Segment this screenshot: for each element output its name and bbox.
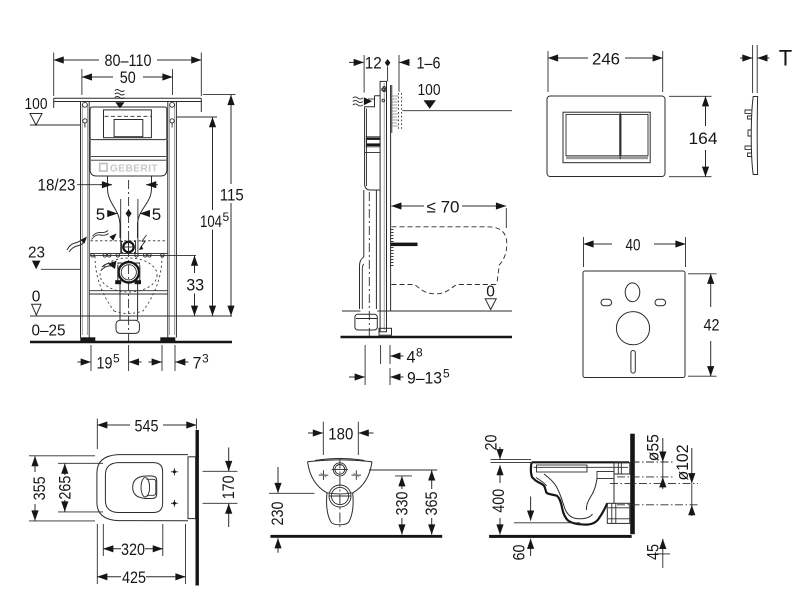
svg-text:GEBERIT: GEBERIT [110, 163, 158, 175]
svg-text:5: 5 [152, 205, 161, 224]
svg-text:5: 5 [443, 367, 450, 381]
svg-text:180: 180 [328, 425, 353, 444]
svg-text:115: 115 [220, 185, 244, 204]
svg-text:5: 5 [96, 205, 105, 224]
svg-text:246: 246 [592, 50, 620, 69]
svg-text:104: 104 [200, 212, 222, 231]
svg-text:230: 230 [268, 502, 287, 526]
svg-text:100: 100 [418, 82, 441, 99]
svg-text:5: 5 [113, 352, 120, 366]
svg-text:33: 33 [186, 276, 204, 295]
svg-text:330: 330 [392, 492, 411, 516]
svg-text:425: 425 [122, 568, 146, 587]
svg-text:320: 320 [121, 540, 145, 559]
svg-text:50: 50 [120, 68, 136, 87]
svg-text:T: T [779, 46, 792, 71]
svg-text:ø55: ø55 [643, 434, 662, 461]
svg-text:164: 164 [689, 129, 718, 148]
svg-text:1–6: 1–6 [417, 53, 441, 72]
svg-text:3: 3 [202, 352, 209, 366]
svg-text:20: 20 [482, 435, 501, 451]
svg-text:355: 355 [30, 476, 49, 500]
svg-text:265: 265 [55, 476, 74, 500]
svg-text:19: 19 [97, 353, 113, 372]
svg-text:8: 8 [416, 346, 423, 360]
svg-text:400: 400 [489, 489, 508, 513]
svg-text:0: 0 [32, 289, 41, 306]
svg-text:0: 0 [486, 283, 495, 300]
svg-text:60: 60 [510, 545, 529, 561]
svg-text:545: 545 [135, 417, 159, 436]
svg-text:12: 12 [365, 53, 382, 72]
svg-text:365: 365 [422, 492, 441, 516]
svg-text:42: 42 [704, 316, 720, 335]
svg-text:0–25: 0–25 [32, 323, 66, 340]
svg-text:5: 5 [223, 210, 230, 224]
svg-text:9–13: 9–13 [407, 368, 442, 387]
svg-text:18/23: 18/23 [38, 175, 76, 194]
svg-text:≤ 70: ≤ 70 [427, 197, 460, 216]
svg-text:4: 4 [407, 347, 416, 366]
svg-text:100: 100 [25, 96, 48, 113]
svg-text:40: 40 [626, 236, 641, 255]
svg-text:170: 170 [219, 475, 238, 499]
svg-text:ø102: ø102 [673, 445, 692, 481]
svg-text:7: 7 [193, 353, 202, 372]
svg-text:23: 23 [28, 245, 45, 262]
svg-text:45: 45 [643, 544, 662, 560]
